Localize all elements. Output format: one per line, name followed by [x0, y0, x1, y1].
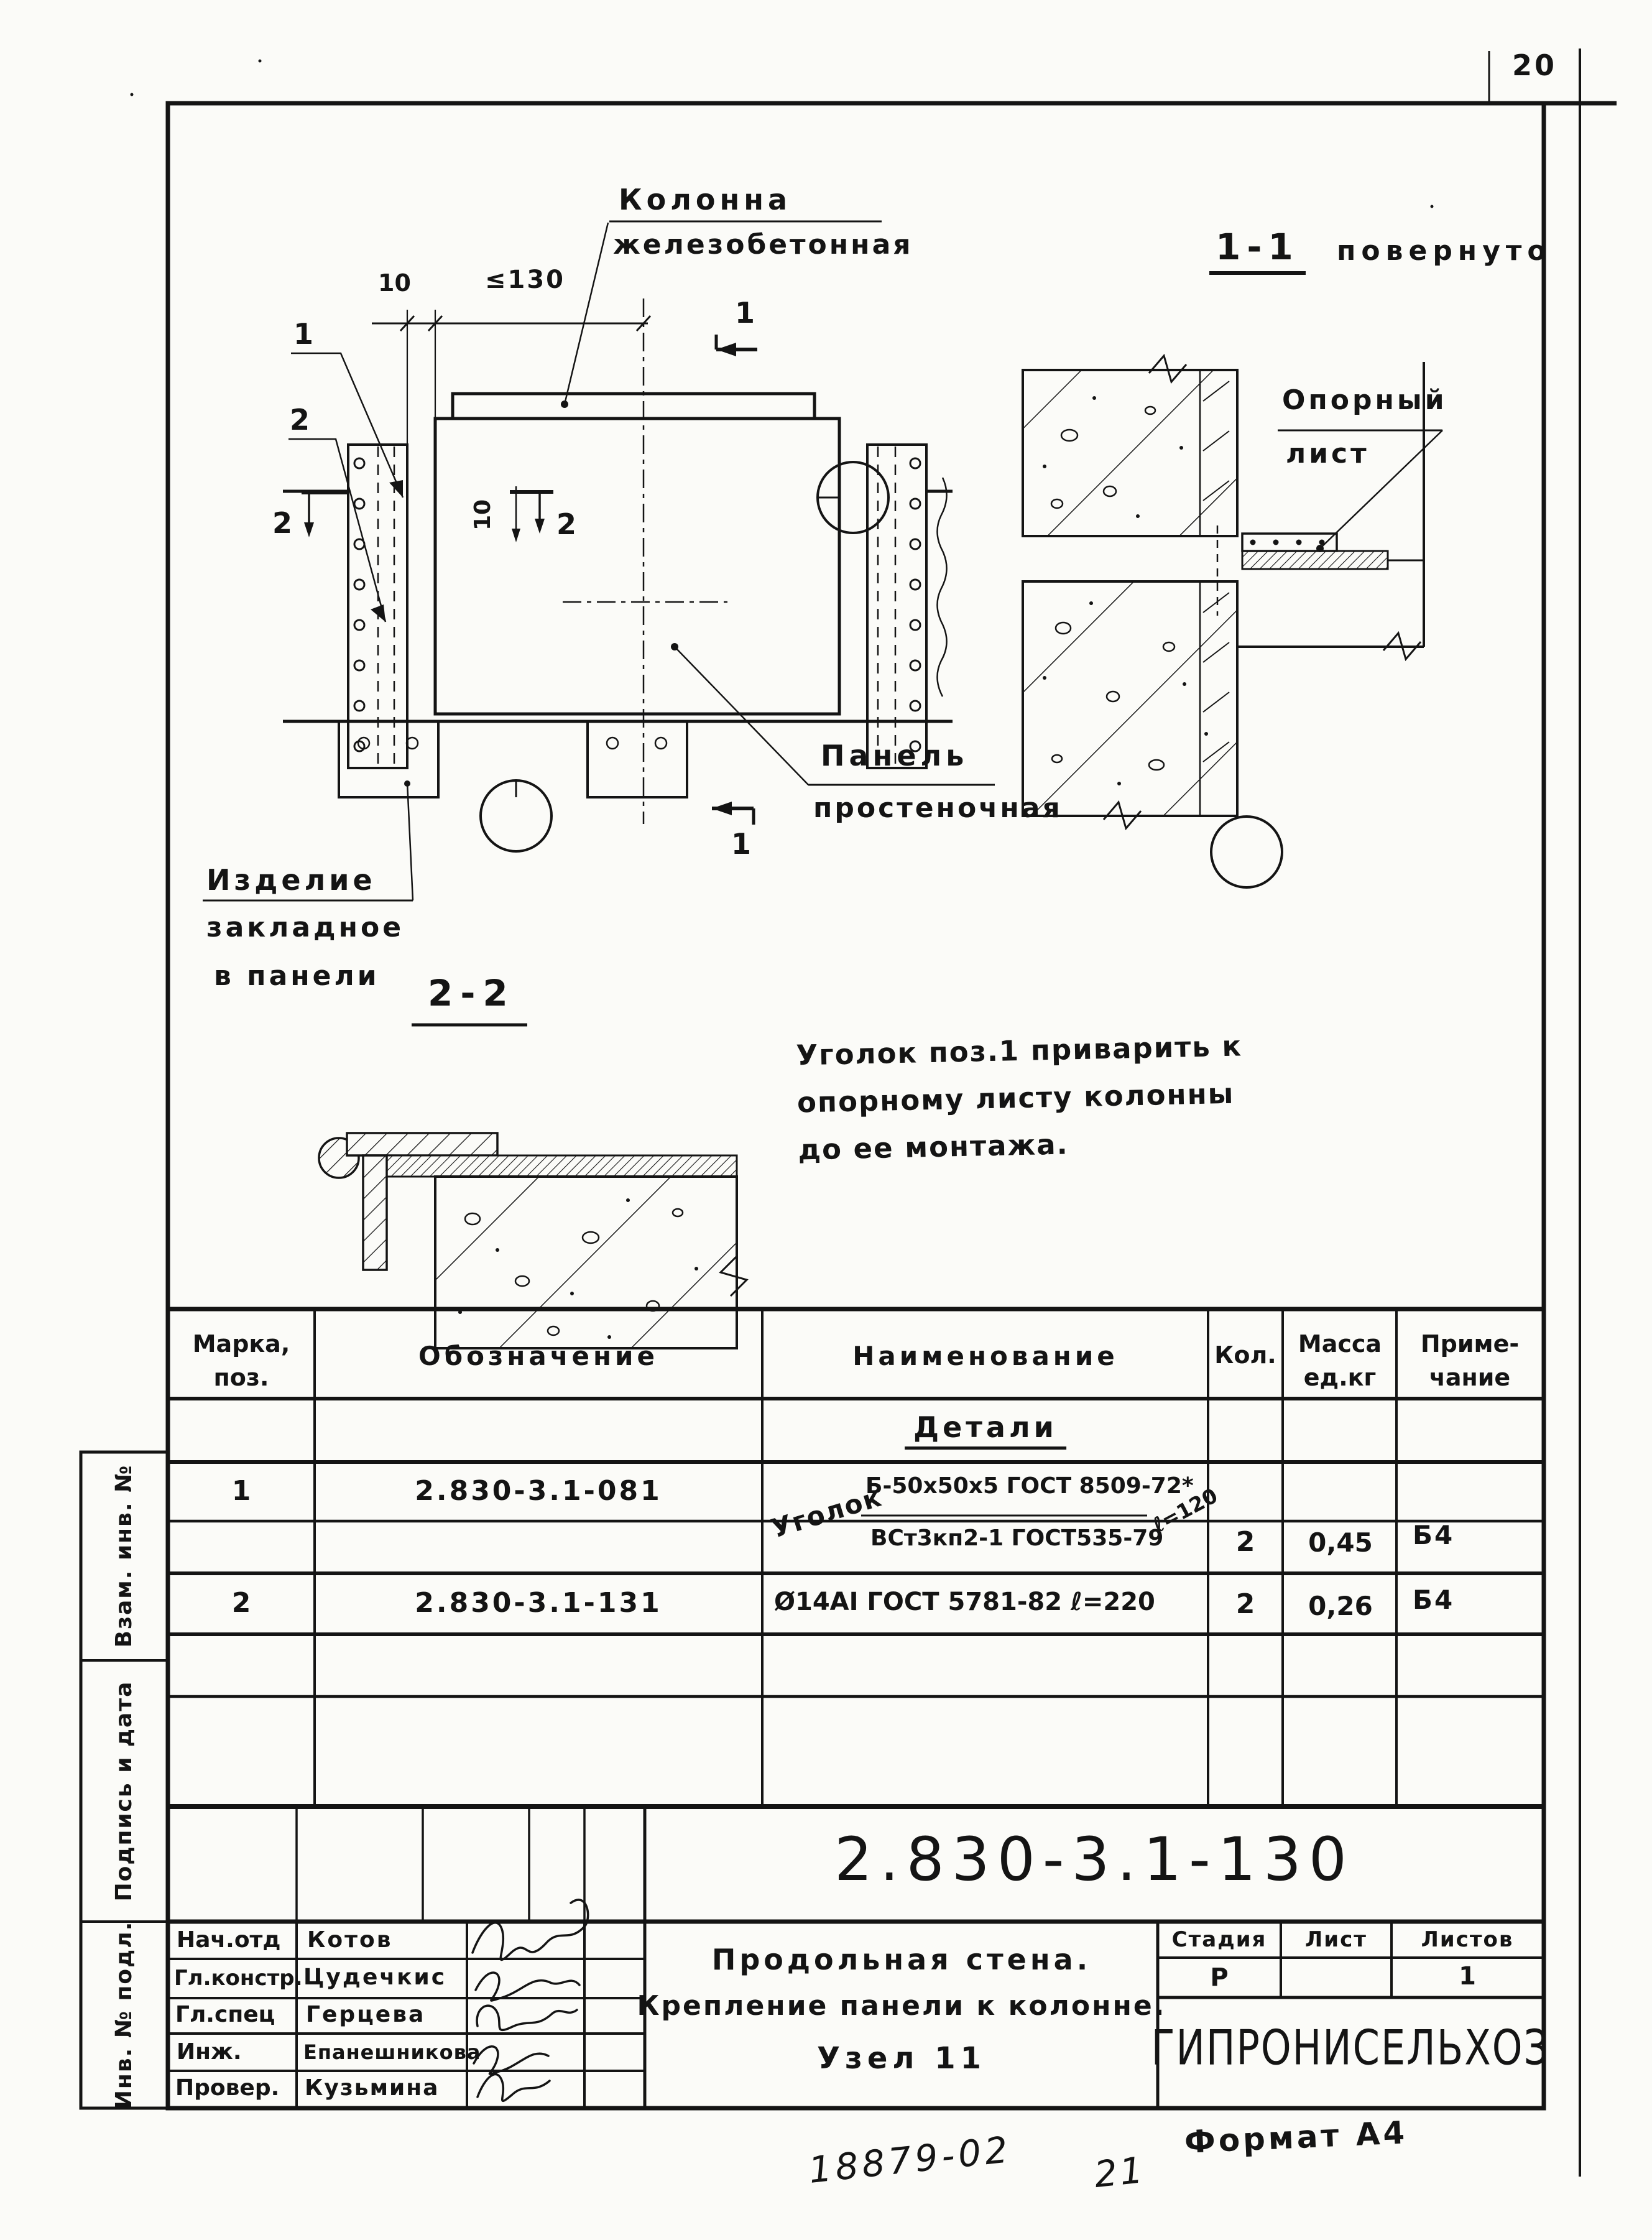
sidebar-label-inv: Инв. № подл. [113, 1921, 136, 2109]
col-header-note-line1: Приме- [1421, 1332, 1519, 1356]
dim-inner: 10 [472, 499, 494, 530]
weld-note-line3: до ее монтажа. [798, 1117, 1245, 1173]
row1-name-numerator: Б-50х50х5 ГОСТ 8509-72* [865, 1475, 1194, 1497]
staff-role-4: Инж. [177, 2041, 242, 2063]
view-1-1-label: 1-1 [1209, 229, 1306, 275]
col-header-designation: Обозначение [418, 1343, 658, 1369]
dim-max: ≤130 [485, 267, 565, 292]
row1-note: Б4 [1413, 1522, 1454, 1548]
column-label-line2: железобетонная [613, 231, 913, 259]
row2-mass: 0,26 [1308, 1593, 1373, 1619]
row1-mark: 1 [232, 1478, 251, 1505]
drawing-sheet: 20 Колонна железобетонная 1-1 повернуто … [0, 0, 1652, 2240]
section-1-1-view [1023, 356, 1442, 887]
row1-mass: 0,45 [1308, 1530, 1373, 1556]
col-header-qty: Кол. [1214, 1343, 1276, 1367]
row2-designation: 2.830-3.1-131 [415, 1590, 662, 1617]
sheet-label: Лист [1305, 1929, 1367, 1950]
section-mark-2-left: 2 [272, 509, 292, 537]
col-header-mark-line2: поз. [214, 1366, 269, 1389]
weld-note: Уголок поз.1 приварить к опорному листу … [796, 1023, 1245, 1174]
row1-name-denominator: ВСт3кп2-1 ГОСТ535-79 [870, 1527, 1163, 1550]
sidebar-label-vzam: Взам. инв. № [113, 1465, 136, 1648]
embed-label-line2: закладное [206, 914, 404, 942]
staff-name-4: Епанешникова [303, 2042, 481, 2062]
staff-role-1: Нач.отд [177, 1929, 280, 1951]
table-group-title: Детали [905, 1413, 1066, 1450]
support-sheet-label-line2: лист [1286, 440, 1370, 468]
support-sheet-label-line1: Опорный [1282, 387, 1447, 414]
document-number: 2.830-3.1-130 [834, 1830, 1354, 1889]
col-header-name: Наименование [852, 1343, 1118, 1369]
column-label-line1: Колонна [619, 185, 791, 214]
embed-label-line3: в панели [214, 963, 380, 990]
section-2-2-view [319, 1025, 747, 1348]
footer-sheet-note: 21 [1092, 2152, 1147, 2193]
row1-designation: 2.830-3.1-081 [415, 1478, 662, 1505]
format-note: Формат А4 [1184, 2117, 1408, 2158]
staff-name-2: Цудечкис [303, 1966, 446, 1989]
staff-role-3: Гл.спец [175, 2004, 275, 2026]
organization-name: ГИПРОНИСЕЛЬХОЗ [1151, 2024, 1550, 2072]
sheets-label: Листов [1421, 1929, 1514, 1950]
weld-note-line2: опорному листу колонны [796, 1070, 1244, 1126]
row2-qty: 2 [1236, 1591, 1255, 1618]
section-mark-2-mid: 2 [556, 510, 576, 539]
row2-name: Ø14АI ГОСТ 5781-82 ℓ=220 [774, 1590, 1155, 1614]
view-1-1-note: повернуто [1337, 238, 1552, 265]
section-mark-1-top: 1 [735, 299, 755, 327]
callout-1: 1 [293, 320, 313, 348]
staff-role-2: Гл.констр. [174, 1968, 303, 1989]
col-header-mass-line2: ед.кг [1304, 1366, 1377, 1389]
section-marks [302, 335, 757, 825]
page-number: 20 [1512, 51, 1557, 80]
row2-note: Б4 [1413, 1587, 1454, 1613]
section-mark-1-bottom: 1 [731, 830, 751, 858]
stage-label: Стадия [1172, 1929, 1267, 1950]
doc-title-line1: Продольная стена. [712, 1945, 1091, 1974]
dim-gap: 10 [378, 271, 411, 295]
col-header-mark-line1: Марка, [193, 1332, 290, 1356]
staff-role-5: Провер. [175, 2077, 279, 2099]
sheets-value: 1 [1459, 1964, 1476, 1989]
stage-value: Р [1210, 1965, 1228, 1990]
panel-label-line1: Панель [821, 741, 968, 770]
col-header-mass-line1: Масса [1298, 1332, 1382, 1356]
embed-label-line1: Изделие [206, 866, 376, 894]
doc-title-line3: Узел 11 [817, 2043, 986, 2073]
sidebar-label-podpis: Подпись и дата [113, 1681, 136, 1902]
section-2-2-label: 2-2 [428, 975, 515, 1011]
staff-name-5: Кузьмина [305, 2077, 439, 2099]
doc-title-line2: Крепление панели к колонне. [637, 1992, 1166, 2020]
staff-name-3: Герцева [306, 2004, 425, 2026]
row1-qty: 2 [1236, 1529, 1255, 1556]
panel-label-line2: простеночная [813, 795, 1063, 822]
staff-name-1: Котов [307, 1929, 393, 1951]
col-header-note-line2: чание [1429, 1366, 1510, 1389]
callout-2: 2 [290, 405, 310, 434]
row2-mark: 2 [232, 1590, 251, 1617]
